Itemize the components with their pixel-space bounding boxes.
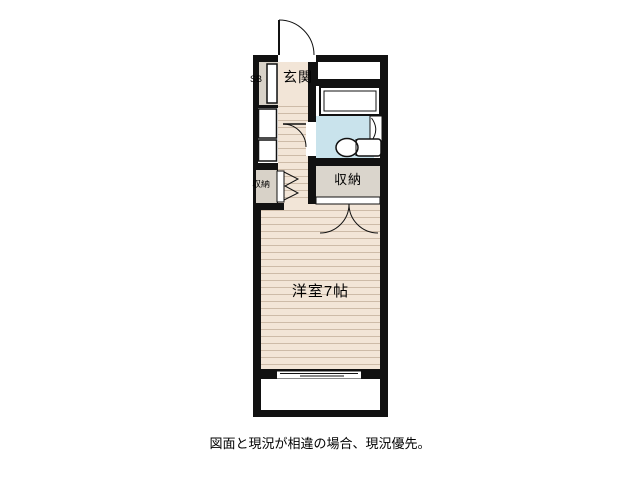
entrance-door-arc <box>279 20 314 55</box>
entrance-label: 玄関 <box>283 70 313 84</box>
floor-plan-linework <box>0 0 640 480</box>
bifold-door-icon <box>284 172 298 200</box>
closet-door-arc-left <box>320 204 349 233</box>
shoe-box-label: SB <box>250 75 262 84</box>
main-room-label: 洋室7帖 <box>261 284 380 299</box>
closet-door-arc-right <box>349 204 378 233</box>
disclaimer-caption: 図面と現況が相違の場合、現況優先。 <box>0 437 640 450</box>
toilet-tank <box>356 139 381 156</box>
left-closet-door-track <box>277 171 284 202</box>
right-closet-door-track <box>316 197 380 204</box>
bathroom-door-arc <box>283 124 306 147</box>
toilet-bowl <box>336 139 358 157</box>
shoe-cabinet <box>267 64 277 103</box>
left-closet-label: 収納 <box>252 180 277 189</box>
left-fixture-upper <box>259 109 277 138</box>
left-fixture-lower <box>259 140 277 161</box>
right-closet-label: 収納 <box>316 173 380 186</box>
window-opening <box>277 372 361 379</box>
